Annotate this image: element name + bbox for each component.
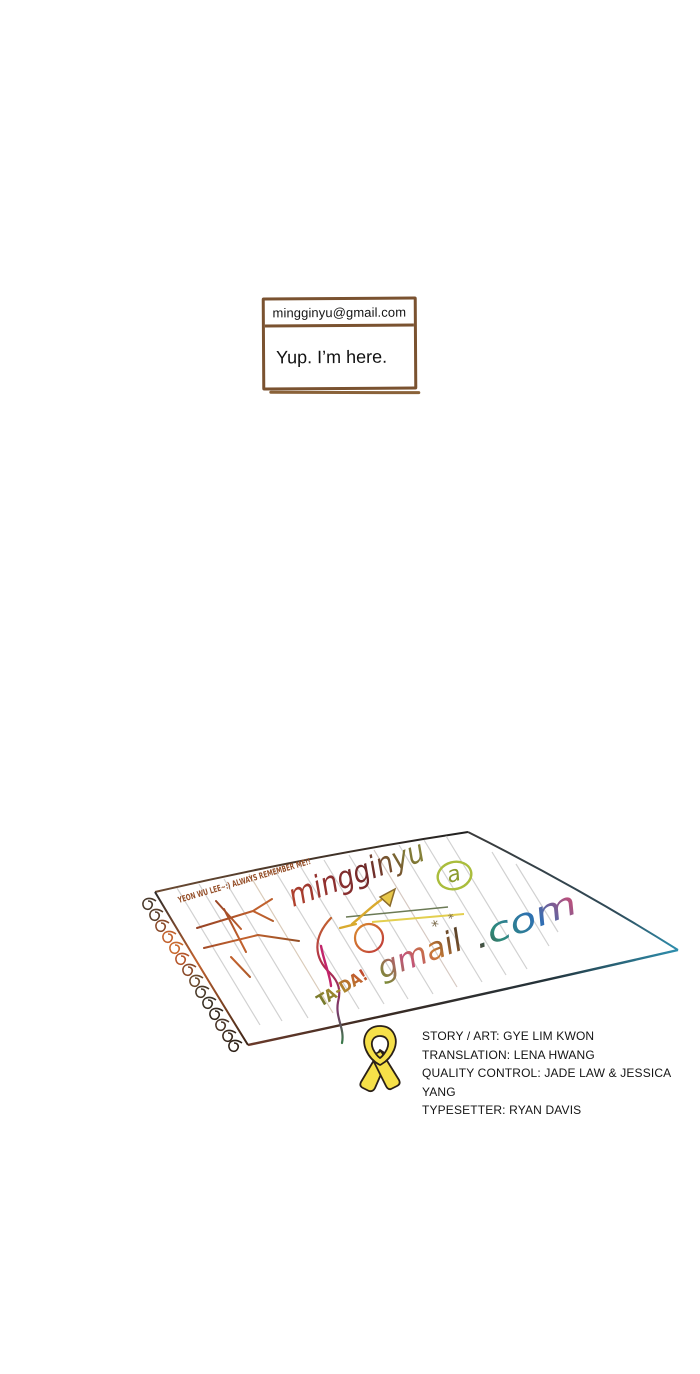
speech-box-reply-row: Yup. I’m here.	[265, 327, 414, 388]
yellow-ribbon-icon	[351, 1025, 409, 1093]
comic-page: mingginyu@gmail.com Yup. I’m here.	[0, 0, 700, 1374]
speech-email-text: mingginyu@gmail.com	[272, 304, 406, 320]
speech-reply-text: Yup. I’m here.	[276, 346, 387, 368]
credit-line-story-art: STORY / ART: GYE LIM KWON	[422, 1027, 700, 1046]
credit-line-translation: TRANSLATION: LENA HWANG	[422, 1046, 700, 1065]
credits-block: STORY / ART: GYE LIM KWON TRANSLATION: L…	[422, 1027, 700, 1120]
credit-line-typesetter: TYPESETTER: RYAN DAVIS	[422, 1101, 700, 1120]
speech-box-email-row: mingginyu@gmail.com	[265, 300, 414, 328]
speech-box: mingginyu@gmail.com Yup. I’m here.	[262, 297, 418, 391]
credit-line-quality-control: QUALITY CONTROL: JADE LAW & JESSICA YANG	[422, 1064, 700, 1101]
ribbon-loop	[364, 1026, 396, 1065]
